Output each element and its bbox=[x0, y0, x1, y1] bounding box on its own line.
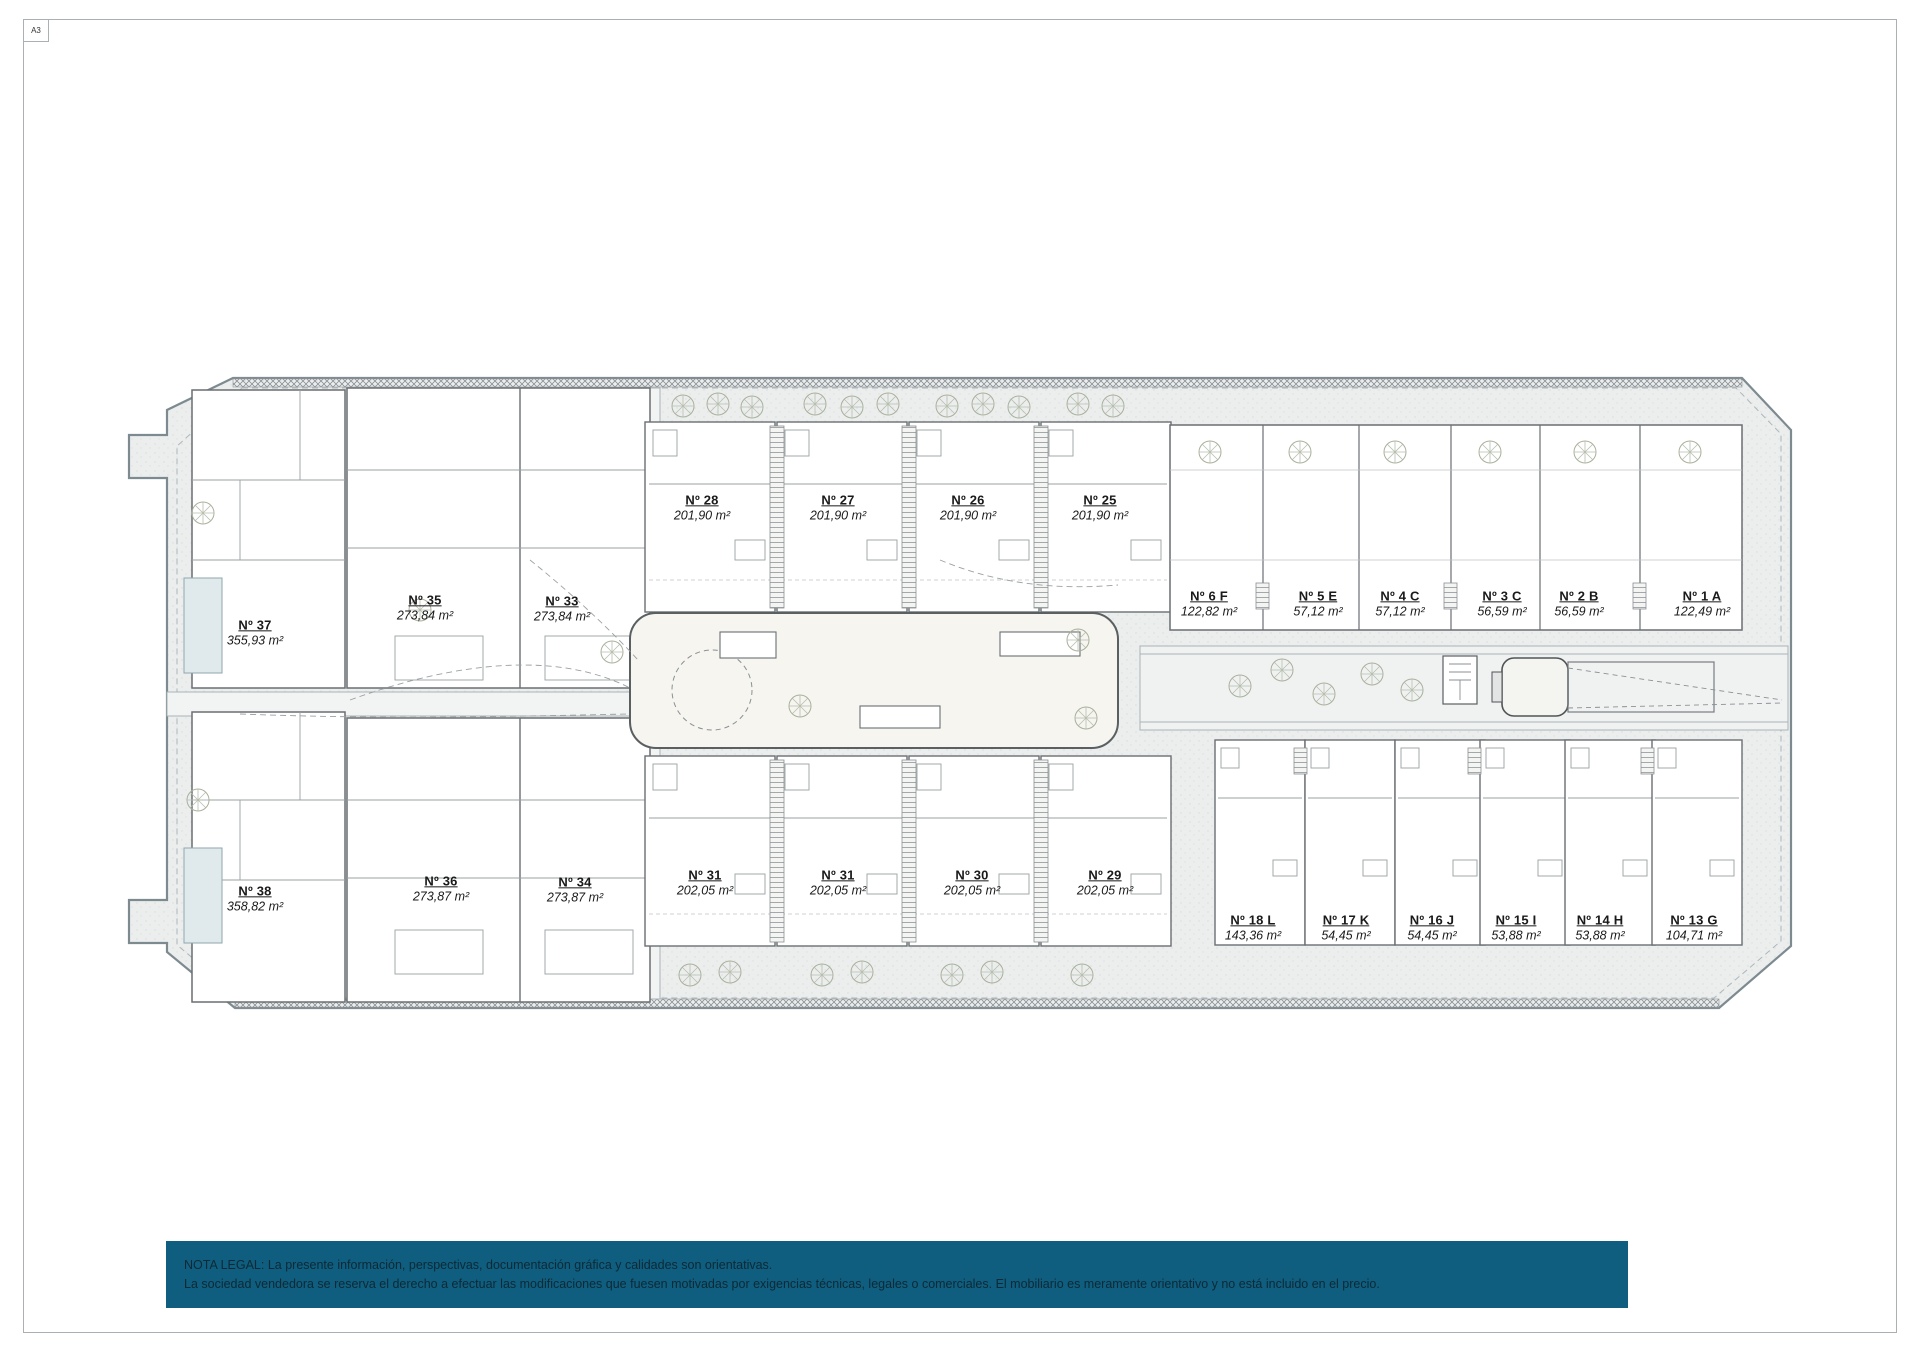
stairwell bbox=[1641, 748, 1654, 774]
apartment-block-bottom bbox=[1215, 740, 1742, 945]
stairwell bbox=[1294, 748, 1307, 774]
townhouse-row-bottom bbox=[645, 756, 1171, 946]
stairwell bbox=[770, 426, 784, 608]
stairwell bbox=[1444, 583, 1457, 609]
perimeter-wall-top bbox=[233, 378, 1742, 387]
stairwell bbox=[1633, 583, 1646, 609]
stairwell bbox=[902, 426, 916, 608]
stairwell bbox=[1256, 583, 1269, 609]
site-plan bbox=[0, 0, 1920, 1357]
stairwell bbox=[1034, 426, 1048, 608]
stairwell bbox=[1468, 748, 1481, 774]
villa-38-block bbox=[184, 712, 345, 1002]
pool bbox=[184, 848, 222, 943]
legal-note-bar: NOTA LEGAL: La presente información, per… bbox=[166, 1241, 1628, 1308]
stairwell bbox=[770, 760, 784, 942]
stairwell bbox=[902, 760, 916, 942]
legal-note-line2: La sociedad vendedora se reserva el dere… bbox=[184, 1277, 1628, 1291]
townhouse-row-top bbox=[645, 422, 1171, 612]
apartment-block-top bbox=[1170, 425, 1742, 630]
pool bbox=[184, 578, 222, 673]
villa-37-block bbox=[184, 390, 345, 688]
central-courtyard bbox=[630, 613, 1118, 748]
legal-note-line1: NOTA LEGAL: La presente información, per… bbox=[184, 1258, 1628, 1272]
sheet: A3 bbox=[0, 0, 1920, 1357]
townhouse-block-35-33 bbox=[347, 388, 650, 688]
stairwell bbox=[1034, 760, 1048, 942]
townhouse-block-36-34 bbox=[347, 718, 650, 1002]
